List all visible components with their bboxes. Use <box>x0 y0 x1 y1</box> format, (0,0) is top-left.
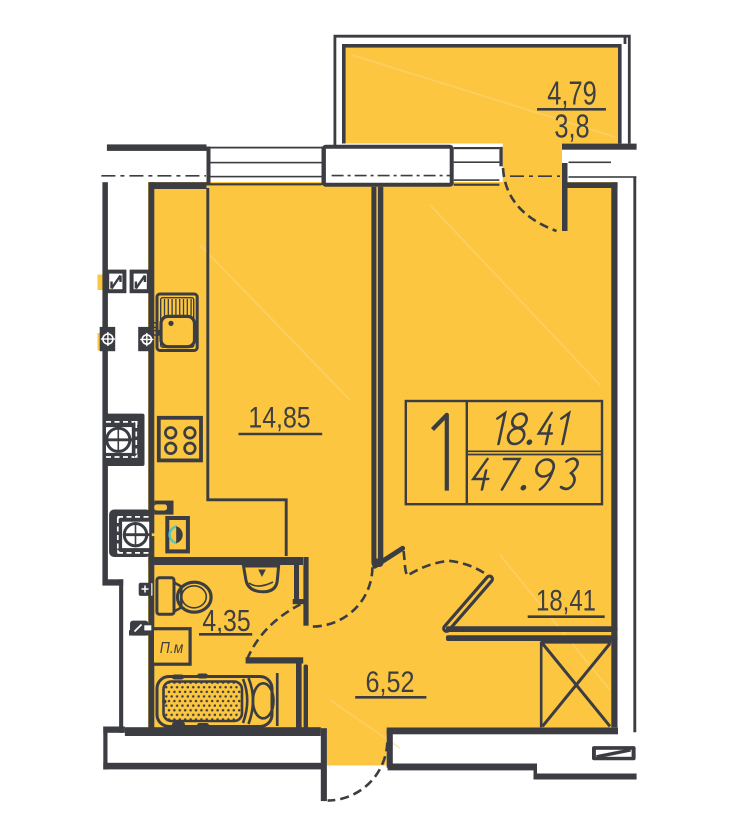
svg-text:3,8: 3,8 <box>554 108 589 145</box>
svg-text:4,79: 4,79 <box>547 75 596 112</box>
svg-text:П.м: П.м <box>160 640 184 657</box>
svg-text:6,52: 6,52 <box>365 665 414 699</box>
svg-text:14,85: 14,85 <box>248 400 310 434</box>
svg-text:18,41: 18,41 <box>536 583 596 617</box>
svg-text:4,35: 4,35 <box>202 603 250 637</box>
